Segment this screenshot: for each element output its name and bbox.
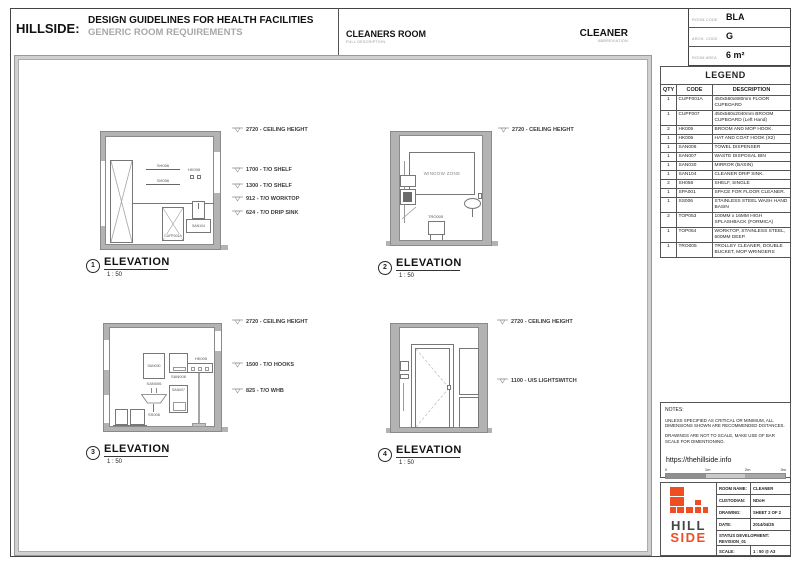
- title-block-rows: ROOM NAME:CLEANER CUSTODIAN:NDoH DRAWING…: [717, 483, 790, 555]
- bucket: [130, 409, 145, 425]
- level-marker-icon: [232, 319, 243, 325]
- scale-bar-labels: 0 1m 2m 3m: [665, 467, 786, 473]
- room-area-value: 6 m²: [726, 50, 745, 60]
- tap-icon: [151, 388, 152, 393]
- notes-line-2: DRAWINGS ARE NOT TO SCALE, MAKE USE OF B…: [665, 433, 786, 445]
- shelf-label: SH056: [146, 163, 180, 170]
- room-abbr-sublabel: ABBREVIATION: [500, 40, 628, 44]
- dimension-callout: 1300 - T/O SHELF: [232, 184, 292, 190]
- elevation-number-bubble: 4: [378, 448, 392, 462]
- notes-line-1: UNLESS SPECIFIED AS CRITICAL OR MINIMUM,…: [665, 418, 786, 430]
- mirror: SAN030: [143, 353, 165, 379]
- level-marker-icon: [497, 319, 508, 325]
- elevation-scale: 1 : 50: [399, 273, 414, 279]
- side-panel: [459, 348, 479, 395]
- elevation-number-bubble: 1: [86, 259, 100, 273]
- trolley: [428, 221, 445, 235]
- shelf-unit: [400, 175, 416, 187]
- legend-col-desc: DESCRIPTION: [713, 85, 791, 96]
- level-marker-icon: [232, 196, 243, 202]
- legend-row: 2HK005BROOM AND MOP HOOK.: [661, 126, 791, 135]
- level-marker-icon: [232, 127, 243, 133]
- elevation-scale: 1 : 50: [107, 459, 122, 465]
- door-leaf: [415, 348, 450, 428]
- logo-text-side: SIDE: [661, 532, 716, 544]
- hook-icon: [190, 175, 194, 179]
- level-marker-icon: [232, 183, 243, 189]
- title-block-row: ROOM NAME:CLEANER: [717, 483, 790, 495]
- room-code-value: BLA: [726, 12, 745, 22]
- legend-row: 1CUPF007450x560x2040mm BROOM CUPBOARD (L…: [661, 111, 791, 126]
- legend-row: 1SPA001SPACE FOR FLOOR CLEANER.: [661, 188, 791, 197]
- dimension-callout: 825 - T/O WHB: [232, 389, 284, 395]
- website-link[interactable]: https://thehillside.info: [666, 457, 731, 464]
- legend-col-code: CODE: [677, 85, 713, 96]
- legend-title: LEGEND: [661, 67, 791, 85]
- elevation-scale: 1 : 50: [107, 272, 122, 278]
- dimension-callout: 1700 - T/O SHELF: [232, 168, 292, 174]
- drip-sink-label: SAN104: [192, 224, 205, 228]
- title-block-row: CUSTODIAN:NDoH: [717, 495, 790, 507]
- brand-title: HILLSIDE:: [16, 21, 80, 36]
- dimension-callout: 2720 - CEILING HEIGHT: [232, 320, 308, 326]
- level-marker-icon: [232, 362, 243, 368]
- wash-basin: [464, 198, 481, 209]
- bin-unit: [400, 189, 416, 205]
- level-marker-icon: [498, 127, 509, 133]
- legend-row: 1TOP064WORKTOP, STAINLESS STEEL, 600MM D…: [661, 227, 791, 242]
- dimension-callout: 624 - T/O DRIP SINK: [232, 211, 298, 217]
- door-handle: [447, 385, 451, 390]
- dimension-callout: 1100 - U/S LIGHTSWITCH: [497, 379, 577, 385]
- wash-basin-label: SS006: [143, 413, 165, 417]
- legend-row: 2SH056SHELF, SINGLE: [661, 179, 791, 188]
- scale-bar: [665, 473, 786, 479]
- dimension-callout: 1500 - T/O HOOKS: [232, 363, 294, 369]
- dimension-callout: 2720 - CEILING HEIGHT: [232, 128, 308, 134]
- title-block-status-row: STATUS DEVELOPMENT: REVISION_01: [717, 531, 790, 546]
- floor-cleaner-space: [115, 409, 128, 425]
- level-marker-icon: [232, 388, 243, 394]
- legend-col-qty: QTY: [661, 85, 677, 96]
- elevation-title: ELEVATION: [396, 258, 462, 269]
- basin-icon: [141, 394, 167, 404]
- elevation-title: ELEVATION: [104, 444, 170, 455]
- legend-row: 1TRO005TROLLEY CLEANER, DOUBLE BUCKET, M…: [661, 242, 791, 257]
- coat-hook-label: HK006: [188, 168, 200, 172]
- hooks-label: HK005: [189, 357, 213, 361]
- dimension-callout: 912 - T/O WORKTOP: [232, 197, 299, 203]
- legend-row: 1SAN006TOWEL DISPENSER: [661, 144, 791, 153]
- strut-line: [400, 205, 418, 221]
- level-marker-icon: [497, 378, 508, 384]
- elevation-number-bubble: 3: [86, 446, 100, 460]
- legend-row: 1SAN030MIRROR (BASIN): [661, 162, 791, 171]
- broom-cupboard: [110, 160, 133, 243]
- lightswitch-plate: [400, 374, 409, 379]
- logo-cell: HILL SIDE: [661, 483, 717, 555]
- hillside-logo-icon: [669, 487, 709, 514]
- hook-icon: [197, 175, 201, 179]
- level-marker-icon: [232, 167, 243, 173]
- mirror-label: SAN030: [147, 364, 160, 368]
- legend: LEGEND QTY CODE DESCRIPTION 1CUPF001A450…: [660, 66, 791, 258]
- door-swing-icon: [416, 349, 449, 427]
- room-full-sublabel: FULL DESCRIPTION: [346, 41, 385, 45]
- trolley-label: TRO005: [428, 215, 443, 219]
- mop-pole: [198, 373, 200, 423]
- waste-bin-label: SAN007: [170, 388, 187, 392]
- floor-cupboard: CUPF001A: [162, 207, 184, 241]
- arch-code-value: G: [726, 31, 733, 41]
- room-full-name: CLEANERS ROOM: [346, 29, 426, 39]
- mop-base: [192, 423, 206, 427]
- dimension-callout: 2720 - CEILING HEIGHT: [498, 128, 574, 134]
- dispenser: [169, 353, 188, 373]
- page-title: DESIGN GUIDELINES FOR HEALTH FACILITIES: [88, 15, 313, 26]
- waste-bin: SAN007: [169, 385, 188, 413]
- drawing-sheet: HILLSIDE: DESIGN GUIDELINES FOR HEALTH F…: [0, 0, 800, 566]
- shelf-label: SH056: [146, 178, 180, 185]
- elevation-title: ELEVATION: [104, 257, 170, 268]
- tap-bracket: [478, 193, 482, 199]
- dispenser-label: SAN006: [169, 375, 188, 379]
- arch-code-label: ARCH. CODE: [692, 38, 718, 42]
- room-code-label: ROOM CODE: [692, 19, 718, 23]
- notes-panel: NOTES: UNLESS SPECIFIED AS CRITICAL OR M…: [660, 402, 791, 478]
- legend-row: 2TOP053100MM x 16MM HIGH SPLASHBACK (FOR…: [661, 212, 791, 227]
- title-block-row: SCALE:1 : 50 @ A3: [717, 546, 790, 556]
- dimension-callout: 2720 - CEILING HEIGHT: [497, 320, 573, 326]
- legend-row: 1SAN007WASTE DISPOSAL BIN: [661, 153, 791, 162]
- elevation-number-bubble: 2: [378, 261, 392, 275]
- title-block-row: DRAWING:SHEET 2 OF 2: [717, 507, 790, 519]
- page-subtitle: GENERIC ROOM REQUIREMENTS: [88, 27, 243, 38]
- title-block: HILL SIDE ROOM NAME:CLEANER CUSTODIAN:ND…: [660, 482, 791, 556]
- lightswitch-plate: [400, 361, 409, 371]
- x-brace-icon: [111, 161, 132, 242]
- legend-row: 1HK006HAT AND COAT HOOK (X2): [661, 135, 791, 144]
- elevation-scale: 1 : 50: [399, 460, 414, 466]
- elevation-title: ELEVATION: [396, 445, 462, 456]
- title-block-row: DATE:2014/04/25: [717, 519, 790, 531]
- header-divider: [338, 8, 339, 55]
- side-panel: [459, 397, 479, 428]
- window-zone: WINDOW ZONE: [409, 152, 475, 195]
- window-zone-label: WINDOW ZONE: [424, 171, 461, 176]
- legend-row: 1SS006STAINLESS STEEL WASH HAND BASIN: [661, 197, 791, 212]
- notes-heading: NOTES:: [665, 407, 786, 414]
- room-area-label: ROOM AREA: [692, 57, 717, 61]
- tap-icon: [156, 388, 157, 393]
- room-abbreviation: CLEANER: [500, 28, 628, 39]
- hook-rail: [187, 363, 213, 373]
- legend-row: 1CUPF001A450x560x880mm FLOOR CUPBOARD: [661, 96, 791, 111]
- towel-dispenser-label: SAN006: [143, 382, 165, 386]
- level-marker-icon: [232, 210, 243, 216]
- floor-cupboard-label: CUPF001A: [163, 234, 183, 238]
- drip-sink: SAN104: [186, 219, 211, 233]
- legend-row: 1SAN104CLEANER DRIP SINK.: [661, 170, 791, 179]
